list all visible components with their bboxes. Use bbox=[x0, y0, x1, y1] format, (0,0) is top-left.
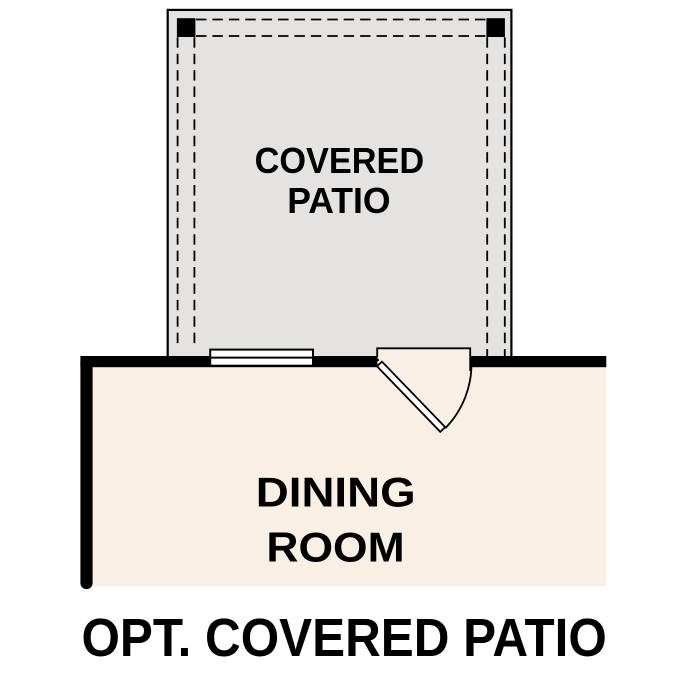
svg-text:ROOM: ROOM bbox=[266, 524, 404, 570]
svg-text:OPT. COVERED PATIO: OPT. COVERED PATIO bbox=[82, 608, 607, 668]
svg-text:DINING: DINING bbox=[256, 469, 416, 515]
svg-text:PATIO: PATIO bbox=[287, 180, 390, 221]
svg-text:COVERED: COVERED bbox=[255, 140, 425, 181]
